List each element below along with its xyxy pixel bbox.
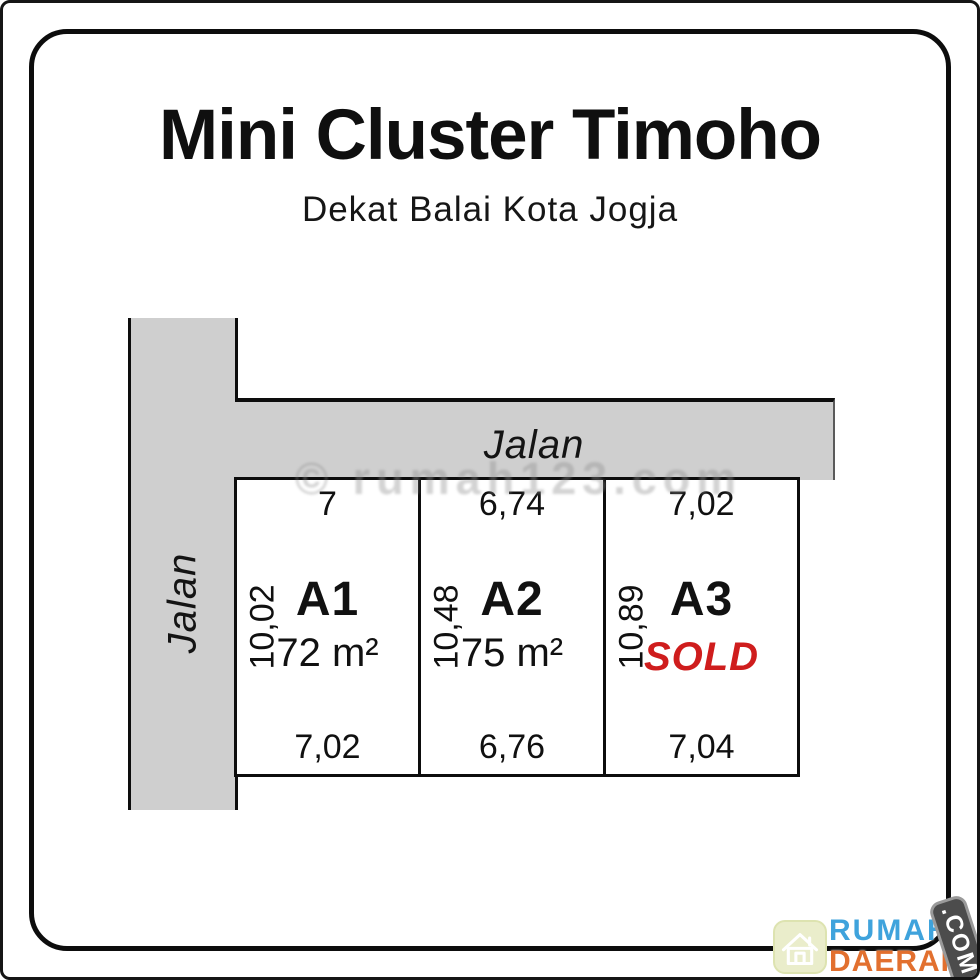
header: Mini Cluster Timoho Dekat Balai Kota Jog… — [3, 95, 977, 230]
plot-a1-name: A1 — [296, 572, 359, 627]
plot-a2-area: 75 m² — [461, 631, 563, 676]
road-vertical-label: Jalan — [161, 553, 206, 654]
plot-a3: 7,02 10,89 A3 SOLD 7,04 — [603, 477, 800, 777]
page-title: Mini Cluster Timoho — [3, 95, 977, 176]
house-icon — [773, 920, 827, 974]
road-horizontal-label: Jalan — [484, 415, 585, 468]
plot-a3-status: SOLD — [644, 635, 759, 680]
plot-a1-bottom-dimension: 7,02 — [294, 729, 360, 766]
plot-a1: 7 10,02 A1 72 m² 7,02 — [234, 477, 421, 777]
page-subtitle: Dekat Balai Kota Jogja — [3, 190, 977, 230]
plot-a1-side-dimension: 10,02 — [244, 584, 281, 669]
plot-a3-name: A3 — [670, 572, 733, 627]
plot-a1-area: 72 m² — [276, 631, 378, 676]
road-horizontal: Jalan — [235, 398, 835, 480]
plot-a3-side-dimension: 10,89 — [613, 584, 650, 669]
plot-a2: 6,74 10,48 A2 75 m² 6,76 — [418, 477, 606, 777]
plot-a2-top-dimension: 6,74 — [479, 486, 545, 523]
plot-a1-top-dimension: 7 — [318, 486, 337, 523]
plot-a2-name: A2 — [480, 572, 543, 627]
brand-logo: RUMAH DAERAH .COM — [769, 906, 980, 980]
plot-a3-bottom-dimension: 7,04 — [668, 729, 734, 766]
plot-a3-center: A3 SOLD — [644, 523, 759, 728]
site-plan-image: Mini Cluster Timoho Dekat Balai Kota Jog… — [0, 0, 980, 980]
plot-a2-center: A2 75 m² — [461, 523, 563, 728]
plot-a3-top-dimension: 7,02 — [668, 486, 734, 523]
plot-a2-bottom-dimension: 6,76 — [479, 729, 545, 766]
plot-a1-center: A1 72 m² — [276, 523, 378, 728]
plot-a2-side-dimension: 10,48 — [428, 584, 465, 669]
